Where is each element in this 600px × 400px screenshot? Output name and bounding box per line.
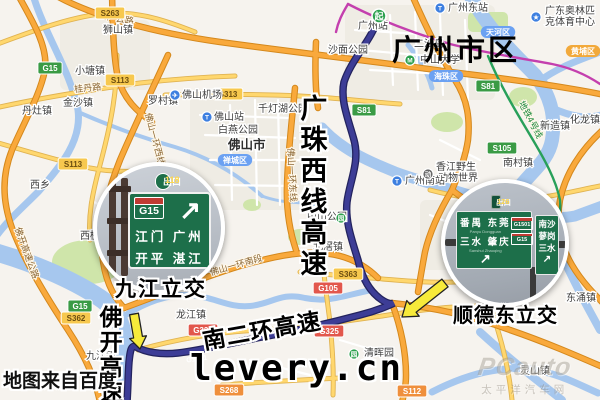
exit-number-badge: 出口126 <box>491 195 501 209</box>
town-poi-label: 金沙镇 <box>63 96 93 109</box>
sign-destinations: 三水 肇庆 <box>460 234 511 248</box>
town-poi-label: 克体育中心 <box>545 15 595 28</box>
sign-destinations: 南沙 <box>536 218 558 230</box>
svg-text:G15: G15 <box>42 64 58 73</box>
road-badge: S363 <box>333 268 363 280</box>
town-poi-label: 东涌镇 <box>566 291 596 304</box>
site-watermark: levery.cn <box>190 348 403 389</box>
sign-destinations: 三水 <box>536 242 558 254</box>
town-poi-label: 化龙镇 <box>570 113 600 126</box>
town-poi-label: 佛山机场 <box>182 88 222 101</box>
expressway-shield: G1501 <box>511 217 533 230</box>
sign-destinations: 江门 广州 <box>134 226 205 245</box>
national-expressway-band <box>134 197 164 204</box>
sign-destinations: 蓼岗 <box>536 230 558 242</box>
town-poi-label: 广东奥林匹 <box>545 4 595 17</box>
highway-guide-sign: G15 ↗ 江门 广州 开平 湛江 <box>128 192 211 269</box>
svg-text:黄埔区: 黄埔区 <box>571 46 595 56</box>
town-poi-label: 香江野生 <box>436 160 476 173</box>
town-poi-label: 沙面公园 <box>328 44 368 56</box>
map-screenshot: G1501 广云路桂丹路佛山一环西线佛山一环东线佛山一环南段佛开高速公路地铁4号… <box>0 0 600 400</box>
road-badge: S113 <box>58 158 88 170</box>
road-badge: S263 <box>95 7 125 19</box>
svg-text:S363: S363 <box>339 270 358 279</box>
exit-number: 126 <box>497 197 510 206</box>
highway-guide-sign: 番禺 东莞 Panyu Dongguan 三水 肇庆 Sanshui Zhaoq… <box>456 211 532 269</box>
svg-text:G105: G105 <box>318 284 338 293</box>
road-badge: S105 <box>487 142 517 154</box>
sign-pole <box>109 178 116 276</box>
annotation-shunde-east-interchange: 顺德东立交 <box>453 306 558 327</box>
exit-number-badge: 出口118 <box>155 173 171 190</box>
svg-text:T: T <box>395 178 399 185</box>
svg-text:S113: S113 <box>64 160 83 169</box>
sign-pinyin: Sanshui Zhaoqing <box>463 248 509 253</box>
pole-rung <box>107 186 131 192</box>
zoo-icon: 动 <box>423 169 433 179</box>
sign-destinations: 开平 湛江 <box>134 248 205 267</box>
arrow-up-right-icon: ↗ <box>460 253 511 265</box>
town-poi-label: 广州东站 <box>448 1 488 14</box>
road-badge: G105 <box>313 282 343 294</box>
map-source-note: 地图来自百度 <box>3 366 117 393</box>
svg-text:S263: S263 <box>101 9 120 18</box>
expressway-shield: G15 <box>511 233 533 246</box>
sign-destinations: 番禺 东莞 <box>460 215 511 229</box>
expressway-code: G15 <box>134 204 164 219</box>
road-badge: G15 <box>38 62 62 74</box>
svg-text:S113: S113 <box>111 76 130 85</box>
airport-icon: ✈ <box>170 90 180 100</box>
svg-text:禅城区: 禅城区 <box>222 155 247 165</box>
pcauto-watermark: PCauto 太平洋汽车网 <box>478 353 572 397</box>
svg-text:S362: S362 <box>67 314 86 323</box>
town-poi-label: 南村镇 <box>503 156 533 169</box>
g15-shield: G15 <box>134 197 164 219</box>
svg-text:S81: S81 <box>481 82 496 91</box>
pcauto-chinese-name: 太平洋汽车网 <box>478 382 572 397</box>
sign-pole <box>121 178 128 276</box>
town-poi-label: 西乡 <box>30 179 50 191</box>
road-badge: S81 <box>352 104 376 116</box>
svg-text:G15: G15 <box>72 302 88 311</box>
svg-text:动: 动 <box>425 169 432 178</box>
town-poi-label: 佛山市 <box>227 137 266 152</box>
annotation-jiujiang-interchange: 九江立交 <box>115 279 207 301</box>
stadium-icon: ★ <box>531 12 541 22</box>
train-station-icon: T <box>435 3 445 13</box>
town-poi-label: 狮山镇 <box>103 23 133 36</box>
photo-inset-shunde: 出口126 番禺 东莞 Panyu Dongguan 三水 肇庆 Sanshui… <box>441 179 569 307</box>
route-start-marker: 起 <box>372 9 386 23</box>
svg-text:S112: S112 <box>403 387 422 396</box>
svg-text:T: T <box>205 114 209 121</box>
road-badge: S113 <box>105 74 135 86</box>
svg-text:S105: S105 <box>493 144 512 153</box>
arrow-up-right-icon: ↗ <box>536 254 558 265</box>
sign-pinyin: Panyu Dongguan <box>463 229 509 234</box>
svg-text:S81: S81 <box>357 106 372 115</box>
photo-inset-jiujiang: 出口118 G15 ↗ 江门 广州 开平 湛江 <box>93 162 225 294</box>
road-badge: S362 <box>61 312 91 324</box>
svg-text:✈: ✈ <box>172 91 178 99</box>
road-badge: 黄埔区 <box>566 45 600 57</box>
road-badge: 禅城区 <box>218 154 252 166</box>
arrow-up-right-icon: ↗ <box>179 197 201 223</box>
road-badge: G15 <box>68 300 92 312</box>
park-icon: 园 <box>336 213 346 223</box>
town-poi-label: 龙江镇 <box>176 308 206 321</box>
town-poi-label: 丹灶镇 <box>22 104 52 117</box>
road-badge: S81 <box>476 80 500 92</box>
svg-text:T: T <box>438 5 442 12</box>
exit-number: 118 <box>165 175 180 185</box>
town-poi-label: 白燕公园 <box>218 123 258 136</box>
svg-text:起: 起 <box>373 11 384 22</box>
svg-text:园: 园 <box>338 213 345 222</box>
annotation-guangzhu-west-expressway: 广珠西线高速 <box>297 94 325 280</box>
town-poi-label: 新造镇 <box>540 119 570 132</box>
town-poi-label: 小塘镇 <box>75 64 105 77</box>
svg-text:海珠区: 海珠区 <box>434 71 458 81</box>
train-station-icon: T <box>392 176 402 186</box>
pcauto-logo: PCauto <box>476 353 574 382</box>
side-guide-sign: 南沙 蓼岗 三水 ↗ <box>535 215 559 275</box>
annotation-guangzhou-city: 广州市区 <box>392 36 520 66</box>
train-station-icon: T <box>202 112 212 122</box>
town-poi-label: 佛山站 <box>214 110 244 123</box>
road-badge: 海珠区 <box>429 70 463 82</box>
